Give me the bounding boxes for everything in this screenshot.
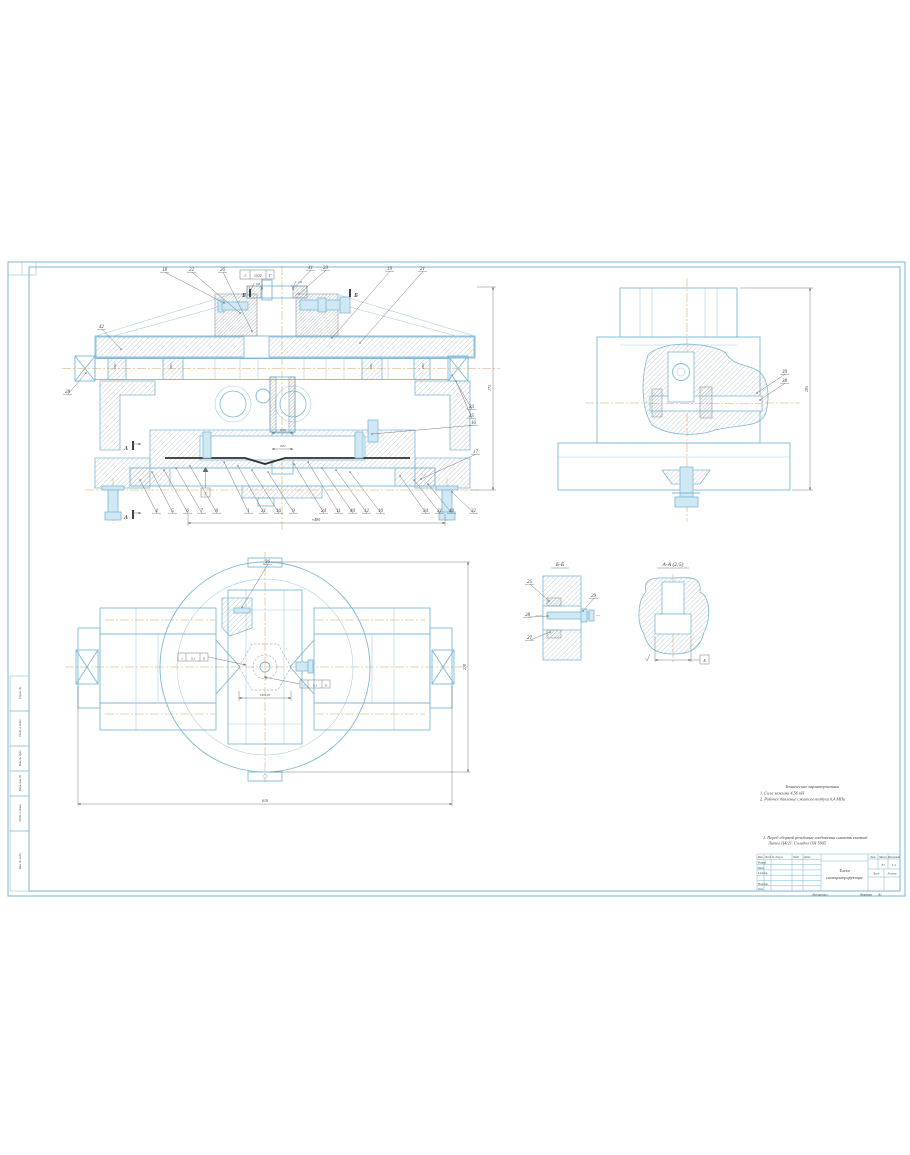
leader-dot [420,478,422,480]
doc-title-line1: Тиски [839,868,850,873]
leader-dot [455,380,457,382]
tb-sheets-label: Листов [886,873,897,876]
view-label-bb: Б-Б [555,562,565,568]
leader-line [190,466,217,513]
bearing [108,359,126,380]
leader-dot [223,302,225,304]
tb-col-docnum: № докум. [771,856,783,859]
leader-dot [292,288,294,290]
side-bearing [652,389,662,417]
roller-left [220,391,246,417]
view-label-aa: А-А (2:5) [662,561,684,568]
leader-line [360,271,423,343]
leader-dot [241,606,243,608]
leader-dot [759,399,761,401]
leader-dot [239,312,241,314]
section-letter-a: А [123,515,128,521]
leader-dot [335,469,337,471]
leader-dot [399,475,401,477]
leader-line [322,468,353,513]
leader-dot [223,461,225,463]
leader-dot [85,372,87,374]
callout-26: 26 [220,268,226,273]
callout-32: 32 [471,509,477,514]
doc-title-line2: самоцентрирующие [826,875,863,880]
aa-slot-lower [655,614,691,634]
assembly-notes: 1. Перед сборкой резьбовые соединения см… [763,835,868,846]
strip-label: Подп. и дата [18,804,22,823]
tb-scale-label: Масштаб [887,856,900,859]
roughness-mark [645,654,650,661]
leader-dot [293,463,295,465]
leader-dot [331,337,333,339]
callout-16: 16 [276,509,282,514]
aa-datum-letter: Б [702,658,706,663]
callout-38: 38 [782,379,788,384]
leader-dot [413,479,415,481]
drawing-page: Справ. № Подп. и дата Инв. № дубл. Взам.… [0,0,910,1155]
leader-dot [582,610,584,612]
hex-dim: 24±0,05 [260,693,271,698]
callout-12: 12 [364,509,370,514]
section-letter-a: А [123,446,128,452]
tb-row-tkontr: Т.контр. [758,872,768,875]
top-screw [262,280,272,300]
leader-dot [298,293,300,295]
anchor-bolt-left [108,490,118,512]
callout-21: 21 [420,267,425,272]
callout-34: 34 [423,509,429,514]
shaft-dim: Ø20 [421,363,425,370]
tb-mass-value: 37 [881,863,885,867]
main-height-dim: 175 [487,385,492,391]
tb-col-list: Лист [764,856,772,859]
callout-33: 33 [469,405,475,410]
tolerance-frame-plan-1: // 0,1 Б [178,653,246,665]
side-top-block [620,288,737,337]
tol-datum: Г [268,273,272,278]
leader-line [583,598,594,611]
tb-row-utv: Утв. [758,888,764,891]
tb-scale-value: 1:1 [892,863,897,867]
callout-31: 31 [437,509,442,514]
callouts-main-top: 18222641231921 [160,266,427,344]
callout-18: 18 [162,268,168,273]
plan-height-dim: 210 [462,664,467,670]
format-label: Формат [860,893,873,897]
callout-11: 11 [336,509,341,514]
callout-35: 35 [469,414,475,419]
stud [203,432,211,458]
jaw-bolt [296,662,308,671]
tb-row-prov: Пров. [757,867,765,870]
top-plate-right [269,337,474,357]
section-bb-view: Б-Б 25292827 [523,562,600,660]
lead-screw [95,359,450,380]
side-height-dim: 205 [804,386,809,392]
gib-screw [234,608,250,613]
callout-22: 22 [189,268,195,273]
tech-req-item: 2. Рабочее давление сжатого воздуха 0,4 … [760,797,845,803]
callout-40: 40 [350,509,356,514]
tb-sheet-label: Лист [872,873,880,876]
section-letter-b: Б [241,293,246,299]
main-view: // 0,02 Г 0,8 1,6 А А Б Б Г [62,266,500,532]
leader-line [336,470,367,513]
callout-19: 19 [387,267,393,272]
tol-symbol: // [243,273,247,278]
aa-slot-upper [662,582,684,614]
callout-10: 10 [378,509,384,514]
leader-line [299,270,326,294]
callout-17: 17 [473,450,479,455]
strip-label: Справ. № [18,687,22,699]
drawing-canvas: Справ. № Подп. и дата Инв. № дубл. Взам.… [0,0,910,1155]
strip-label: Взам. инв. № [18,775,22,792]
callout-40: 40 [449,509,455,514]
leader-line [350,472,381,513]
plan-view: // 0,1 Б // 0,1 Б 24±0,05 610 210 36 [65,552,470,806]
side-bearing [700,387,712,418]
leader-dot [756,392,758,394]
tol-symbol: // [180,657,184,661]
callout-36: 36 [265,560,271,565]
leader-dot [151,471,153,473]
callout-25: 25 [527,580,533,585]
callout-41: 41 [308,266,313,271]
leader-line [242,564,268,607]
leader-dot [251,330,253,332]
leader-dot [359,342,361,344]
left-column-strips: Справ. № Подп. и дата Инв. № дубл. Взам.… [10,676,29,891]
air-fitting [258,498,274,506]
callout-1: 1 [247,509,250,514]
callout-28: 28 [525,613,531,618]
plan-broken-out [222,598,252,636]
leader-dot [451,491,453,493]
datum-flag: Г [201,467,210,497]
bearing [163,359,183,380]
leader-dot [251,469,253,471]
leader-dot [427,483,429,485]
center-dim: Ø40 [279,428,286,432]
bottom-cap [242,486,322,498]
section-letter-b: Б [353,293,358,299]
leader-dot [267,471,269,473]
tol-datum: Б [202,657,205,661]
callout-42: 42 [99,325,105,330]
leader-dot [189,465,191,467]
leader-dot [120,348,122,350]
tb-row-nkontr: Н.контр. [757,883,769,886]
callout-24: 24 [321,509,327,514]
leader-line [165,272,224,303]
note-line: Литол Ц4/21. Солидол ОН 5905 [767,841,827,846]
leader-dot [139,479,141,481]
callout-39: 39 [782,370,788,375]
stud [368,420,378,442]
detail-aa-view: А-А (2:5) Б [639,561,709,664]
main-width-dim: ≈480 [312,517,320,522]
top-plate-left [96,337,244,357]
callout-29: 29 [591,594,597,599]
strip-label: Подп. и дата [18,719,22,738]
callout-23: 23 [323,266,329,271]
tolerance-frame-plan-2: // 0,1 Б [264,677,330,689]
leader-dot [163,469,165,471]
tol-datum: Б [324,684,327,688]
tb-row-razrab: Разраб. [757,862,767,865]
leader-dot [307,461,309,463]
stud [355,432,363,458]
side-view: 205 3938 [558,278,813,522]
shaft-dim: Ø25 [369,363,373,370]
title-block: Изм. Лист № докум. Подп. Дата Разраб. Пр… [757,854,901,897]
shaft-dim: Ø25 [169,363,173,370]
callout-27: 27 [527,636,533,641]
callout-31: 31 [261,509,266,514]
foot-right [415,458,470,488]
leader-dot [349,471,351,473]
callout-28: 28 [65,390,71,395]
leader-dot [371,433,373,435]
plan-width-dim: 610 [262,798,268,803]
technical-requirements: Технические характеристики 1. Сила зажим… [760,784,845,803]
leader-line [164,470,188,513]
leader-dot [175,467,177,469]
copied-label: Копировал [811,893,828,897]
center-dim: Ø32 [279,444,286,448]
tech-req-title: Технические характеристики [785,784,839,789]
shaft-dim: Ø20 [113,363,117,370]
tb-col-podp: Подп. [792,856,800,859]
strip-label: Инв. № дубл. [18,750,22,768]
side-bolt [680,467,693,497]
leader-dot [548,600,550,602]
left-bracket [100,381,155,450]
leader-dot [549,631,551,633]
format-value: А1 [877,893,882,897]
tb-col-data: Дата [803,856,811,859]
leader-dot [451,374,453,376]
leader-dot [547,615,549,617]
tb-mass-label: Масса [878,856,887,859]
leader-line [68,373,86,394]
strip-label: Инв. № подл. [18,852,22,870]
leader-dot [321,467,323,469]
tb-col-izm: Изм. [757,856,764,859]
leader-line [176,468,202,513]
callout-16: 16 [471,421,477,426]
leader-dot [237,465,239,467]
tb-lit-label: Лит. [869,856,876,859]
roughness-value: 1,6 [298,280,302,285]
tol-value: 0,02 [255,273,262,279]
tol-value: 0,1 [191,657,195,662]
note-line: 1. Перед сборкой резьбовые соединения см… [763,835,868,840]
